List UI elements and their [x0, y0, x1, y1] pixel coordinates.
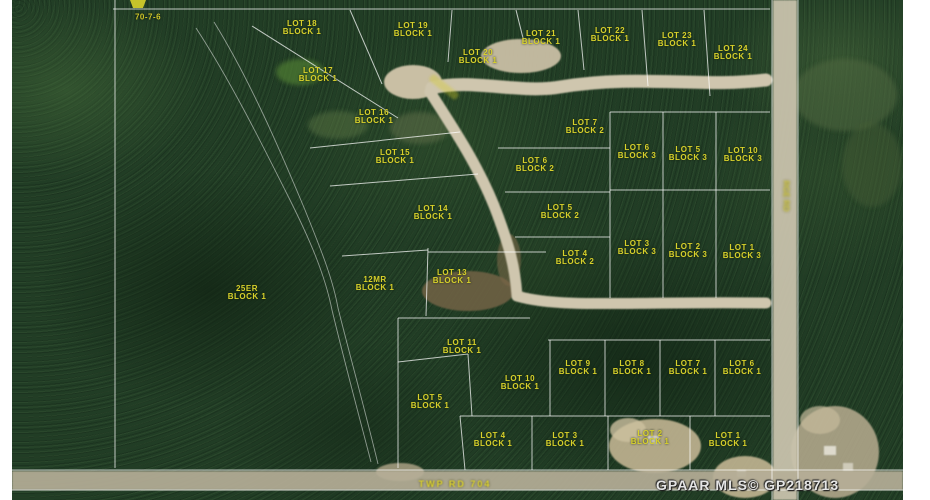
lot-label: LOT 22BLOCK 1: [591, 27, 630, 43]
lot-label: LOT 20BLOCK 1: [459, 49, 498, 65]
lot-label: LOT 3BLOCK 1: [546, 432, 585, 448]
aerial-plat-photo: LOT 18BLOCK 1LOT 19BLOCK 1LOT 21BLOCK 1L…: [0, 0, 930, 500]
lot-label: LOT 23BLOCK 1: [658, 32, 697, 48]
left-margin: [0, 0, 12, 500]
lot-label: LOT 2BLOCK 1: [631, 430, 670, 446]
lot-label: LOT 13BLOCK 1: [433, 269, 472, 285]
township-road-label: TWP RD 704: [419, 479, 492, 489]
lot-label: LOT 14BLOCK 1: [414, 205, 453, 221]
mls-watermark: GPAAR MLS© GP218713: [656, 477, 839, 493]
lot-label: LOT 5BLOCK 1: [411, 394, 450, 410]
lot-label: LOT 7BLOCK 2: [566, 119, 605, 135]
lot-label: LOT 18BLOCK 1: [283, 20, 322, 36]
lot-label: LOT 19BLOCK 1: [394, 22, 433, 38]
lot-label: 12MRBLOCK 1: [356, 276, 395, 292]
lot-label: LOT 24BLOCK 1: [714, 45, 753, 61]
lot-label: LOT 1BLOCK 3: [723, 244, 762, 260]
lot-label: LOT 3BLOCK 3: [618, 240, 657, 256]
lot-label: LOT 16BLOCK 1: [355, 109, 394, 125]
lot-label: LOT 5BLOCK 3: [669, 146, 708, 162]
lot-label: LOT 2BLOCK 3: [669, 243, 708, 259]
lot-label: LOT 4BLOCK 2: [556, 250, 595, 266]
lot-label: LOT 15BLOCK 1: [376, 149, 415, 165]
lot-label: LOT 6BLOCK 1: [723, 360, 762, 376]
lot-label: 25ERBLOCK 1: [228, 285, 267, 301]
lot-label: LOT 4BLOCK 1: [474, 432, 513, 448]
range-road-label: RGE RD: [782, 180, 791, 211]
lot-label: LOT 17BLOCK 1: [299, 67, 338, 83]
lot-label-layer: LOT 18BLOCK 1LOT 19BLOCK 1LOT 21BLOCK 1L…: [0, 0, 930, 500]
section-township-range-label: 70-7-6: [135, 13, 161, 22]
lot-label: LOT 11BLOCK 1: [443, 339, 482, 355]
right-margin: [903, 0, 930, 500]
lot-label: LOT 8BLOCK 1: [613, 360, 652, 376]
lot-label: LOT 10BLOCK 1: [501, 375, 540, 391]
lot-label: LOT 9BLOCK 1: [559, 360, 598, 376]
lot-label: LOT 10BLOCK 3: [724, 147, 763, 163]
lot-label: LOT 21BLOCK 1: [522, 30, 561, 46]
lot-label: LOT 5BLOCK 2: [541, 204, 580, 220]
lot-label: LOT 7BLOCK 1: [669, 360, 708, 376]
lot-label: LOT 6BLOCK 2: [516, 157, 555, 173]
lot-label: LOT 6BLOCK 3: [618, 144, 657, 160]
lot-label: LOT 1BLOCK 1: [709, 432, 748, 448]
